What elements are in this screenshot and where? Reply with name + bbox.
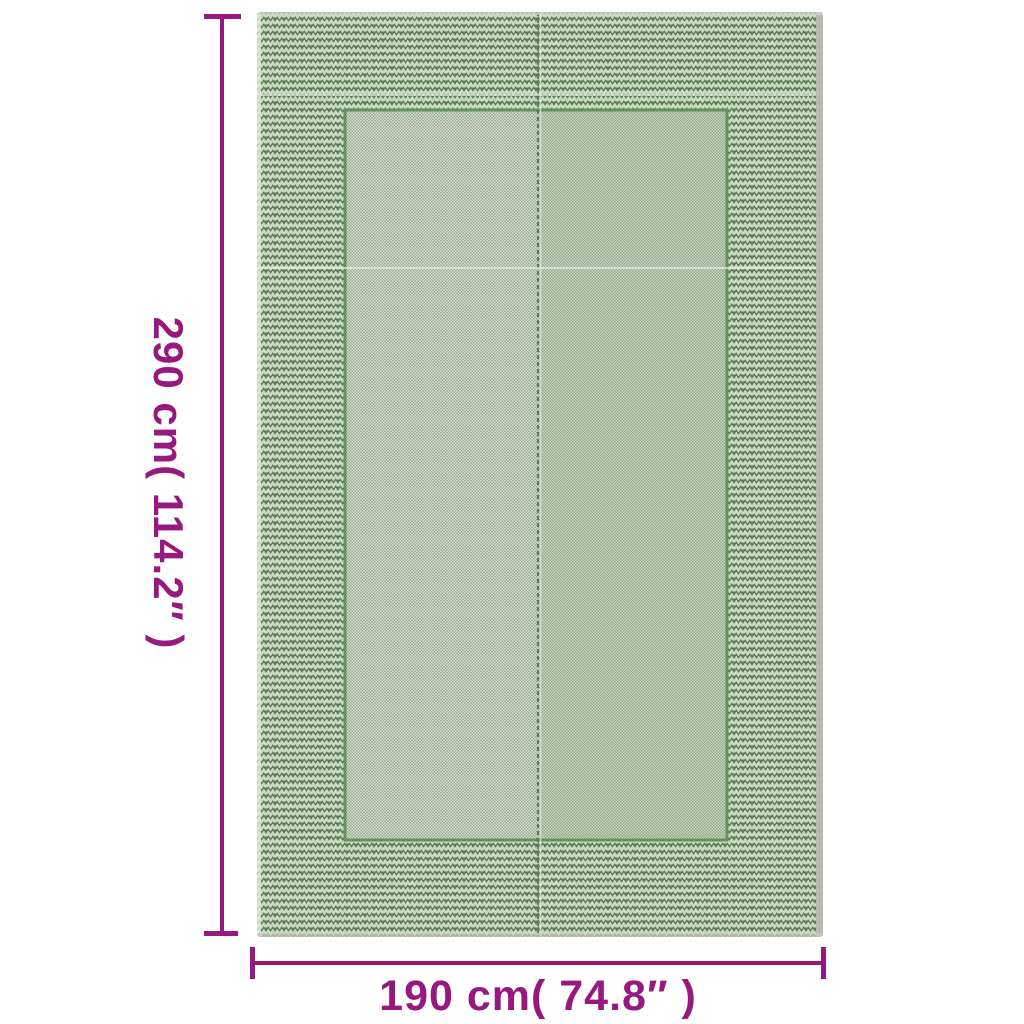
width-dimension-line	[252, 961, 824, 965]
rug-edge-left	[257, 12, 261, 937]
rug-photo	[257, 12, 823, 937]
height-dimension-endcap-bottom	[204, 931, 238, 936]
rug-edge-right	[816, 12, 823, 937]
rug-edge-top	[257, 12, 823, 15]
rug-field-shade	[538, 110, 727, 840]
rug-edge-bottom	[257, 933, 823, 937]
height-dimension-label: 290 cm( 114.2″ )	[144, 317, 192, 650]
product-image-canvas: 290 cm( 114.2″ ) 190 cm( 74.8″ )	[0, 0, 1024, 1024]
rug-graphic	[257, 12, 823, 937]
width-dimension-label: 190 cm( 74.8″ )	[252, 972, 824, 1021]
height-dimension-line	[220, 16, 224, 935]
